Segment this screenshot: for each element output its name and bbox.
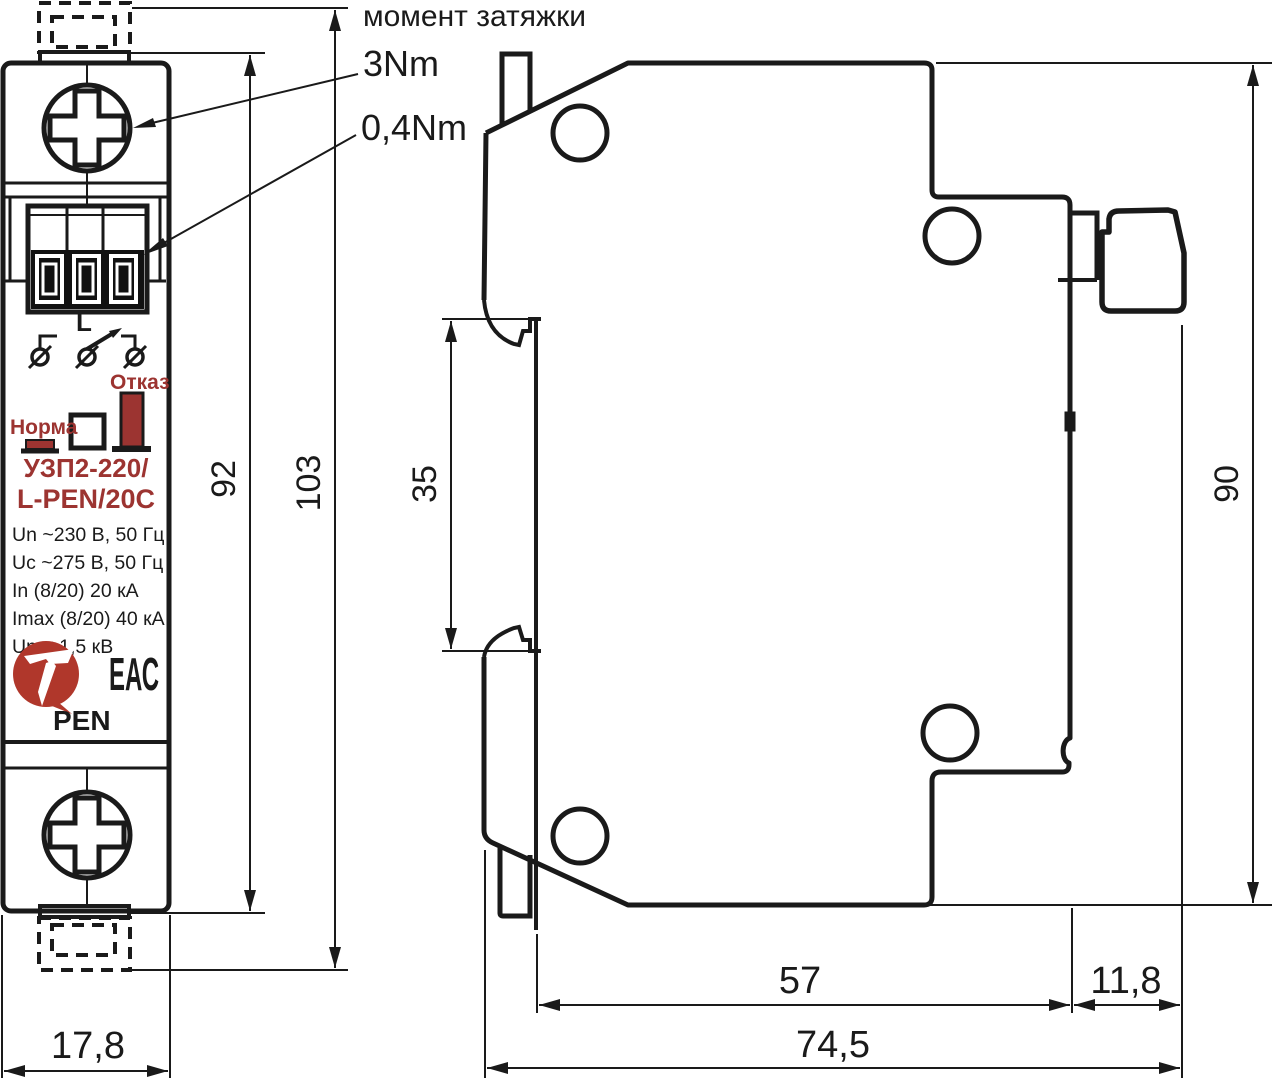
status-ok-indicator bbox=[26, 440, 54, 449]
side-body-outline bbox=[484, 63, 1070, 905]
dim-103-label: 103 bbox=[290, 455, 328, 512]
model-line1: УЗП2-220/ bbox=[24, 453, 149, 483]
rivet-hole bbox=[923, 706, 977, 760]
rivet-hole bbox=[553, 106, 607, 160]
drawing-canvas: L Отказ Норма УЗП2-220/ L-PEN/20C Un ~23… bbox=[0, 0, 1272, 1080]
rivet-hole bbox=[553, 809, 607, 863]
leader-line-screw bbox=[152, 74, 358, 123]
rear-din-latch bbox=[1058, 210, 1184, 430]
leader-line-terminal bbox=[162, 135, 356, 244]
spec-list: Un ~230 В, 50 Гц Uc ~275 В, 50 Гц In (8/… bbox=[12, 524, 165, 658]
rail-hook-bottom bbox=[484, 627, 541, 657]
extension-lines-side-depth bbox=[485, 325, 1182, 1078]
dim-35-label: 35 bbox=[406, 465, 444, 503]
front-view: L Отказ Норма УЗП2-220/ L-PEN/20C Un ~23… bbox=[3, 3, 170, 970]
dim-74-5-label: 74,5 bbox=[796, 1024, 870, 1066]
leader-arrow-screw bbox=[133, 118, 156, 128]
screw-cross-slot bbox=[50, 91, 124, 165]
dim-11-8-label: 11,8 bbox=[1090, 960, 1161, 1002]
bottom-screw bbox=[44, 792, 130, 878]
dimensions: 92 103 17,8 35 90 57 11,8 bbox=[2, 8, 1272, 1078]
spec-line: In (8/20) 20 кА bbox=[12, 580, 139, 602]
dim-57-label: 57 bbox=[779, 960, 821, 1002]
spec-line: Imax (8/20) 40 кА bbox=[12, 608, 165, 630]
din-clip-bottom bbox=[39, 906, 130, 970]
torque-terminal-label: 0,4Nm bbox=[361, 107, 467, 148]
status-indicators: Отказ Норма bbox=[10, 371, 170, 451]
rivet-hole bbox=[925, 209, 979, 263]
spring-clip bbox=[1102, 210, 1184, 311]
din-clip-top bbox=[39, 3, 130, 63]
spec-line: Un ~230 В, 50 Гц bbox=[12, 524, 164, 546]
screw-cross-slot bbox=[50, 798, 124, 872]
technical-drawing: L Отказ Норма УЗП2-220/ L-PEN/20C Un ~23… bbox=[0, 0, 1272, 1080]
status-fail-indicator bbox=[121, 393, 143, 447]
heading-label: момент затяжки bbox=[363, 0, 586, 33]
rail-hook-top bbox=[484, 300, 541, 345]
phase-mark-label: L bbox=[76, 307, 92, 337]
side-view bbox=[484, 54, 1184, 930]
extension-lines-rail bbox=[442, 319, 541, 651]
dim-90-label: 90 bbox=[1208, 465, 1246, 503]
status-ok-label: Норма bbox=[10, 416, 78, 439]
top-screw bbox=[44, 85, 130, 171]
torque-screw-label: 3Nm bbox=[363, 43, 439, 84]
status-fail-label: Отказ bbox=[110, 371, 170, 394]
terminal-block bbox=[28, 206, 147, 312]
din-rail-groove bbox=[484, 300, 541, 930]
model-line2: L-PEN/20C bbox=[17, 484, 155, 514]
manufacturer-logo-icon bbox=[13, 641, 79, 714]
dim-17-8-label: 17,8 bbox=[51, 1025, 125, 1067]
dim-92-label: 92 bbox=[205, 460, 243, 498]
spec-line: Uc ~275 В, 50 Гц bbox=[12, 552, 163, 574]
pen-label: PEN bbox=[53, 705, 111, 736]
torque-annotations: момент затяжки 3Nm 0,4Nm bbox=[133, 0, 586, 255]
eac-mark: ЕАС bbox=[109, 648, 159, 700]
